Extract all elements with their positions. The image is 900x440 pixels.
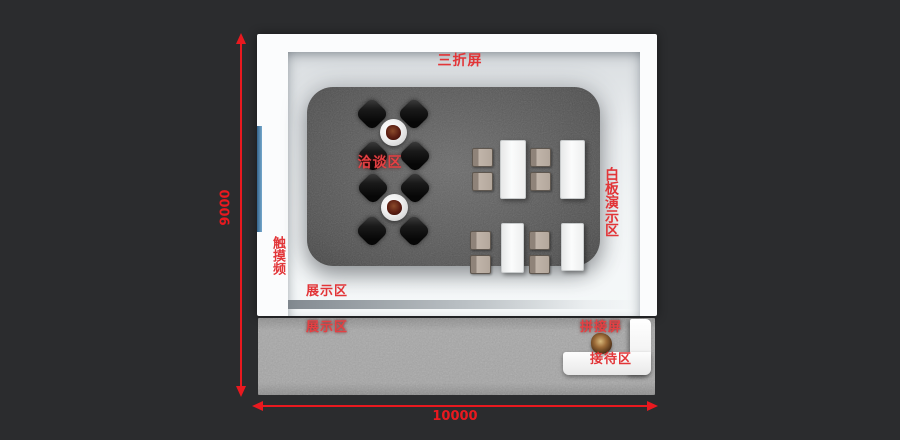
- label-display-area-outer: 展示区: [303, 321, 351, 334]
- beige-chair: [529, 231, 550, 250]
- dimension-label-height: 9000: [219, 178, 234, 238]
- label-whiteboard-demo-area: 白板演示区: [604, 157, 618, 247]
- booth-floorplan: 三折屏 洽谈区 白板演示区 触摸频 展示区 展示区 拼接屏 接待区 9000 1…: [0, 0, 900, 440]
- label-splicing-screen: 拼接屏: [577, 321, 625, 334]
- beige-chair: [530, 172, 551, 191]
- label-tri-fold-screen: 三折屏: [414, 54, 506, 68]
- arrow-left-icon: [252, 401, 263, 411]
- dimension-line-vertical: [240, 40, 242, 390]
- dimension-label-width: 10000: [420, 409, 490, 424]
- beige-chair: [470, 255, 491, 274]
- rect-table: [500, 140, 526, 199]
- label-display-area-inner: 展示区: [303, 285, 351, 298]
- round-table: [380, 119, 407, 146]
- beige-chair: [472, 148, 493, 167]
- arrow-up-icon: [236, 33, 246, 44]
- table-centerpiece: [386, 125, 401, 140]
- rect-table: [560, 140, 585, 199]
- beige-chair: [529, 255, 550, 274]
- rect-table: [561, 223, 584, 271]
- black-chair: [397, 214, 431, 248]
- dimension-line-horizontal: [258, 405, 652, 407]
- label-reception-area: 接待区: [587, 353, 635, 366]
- label-negotiation-area: 洽谈区: [351, 156, 409, 170]
- black-chair: [355, 214, 389, 248]
- beige-chair: [530, 148, 551, 167]
- arrow-right-icon: [647, 401, 658, 411]
- label-touch-screen: 触摸频: [271, 232, 284, 278]
- round-table: [381, 194, 408, 221]
- beige-chair: [470, 231, 491, 250]
- arrow-down-icon: [236, 386, 246, 397]
- rect-table: [501, 223, 524, 273]
- beige-chair: [472, 172, 493, 191]
- table-centerpiece: [387, 200, 402, 215]
